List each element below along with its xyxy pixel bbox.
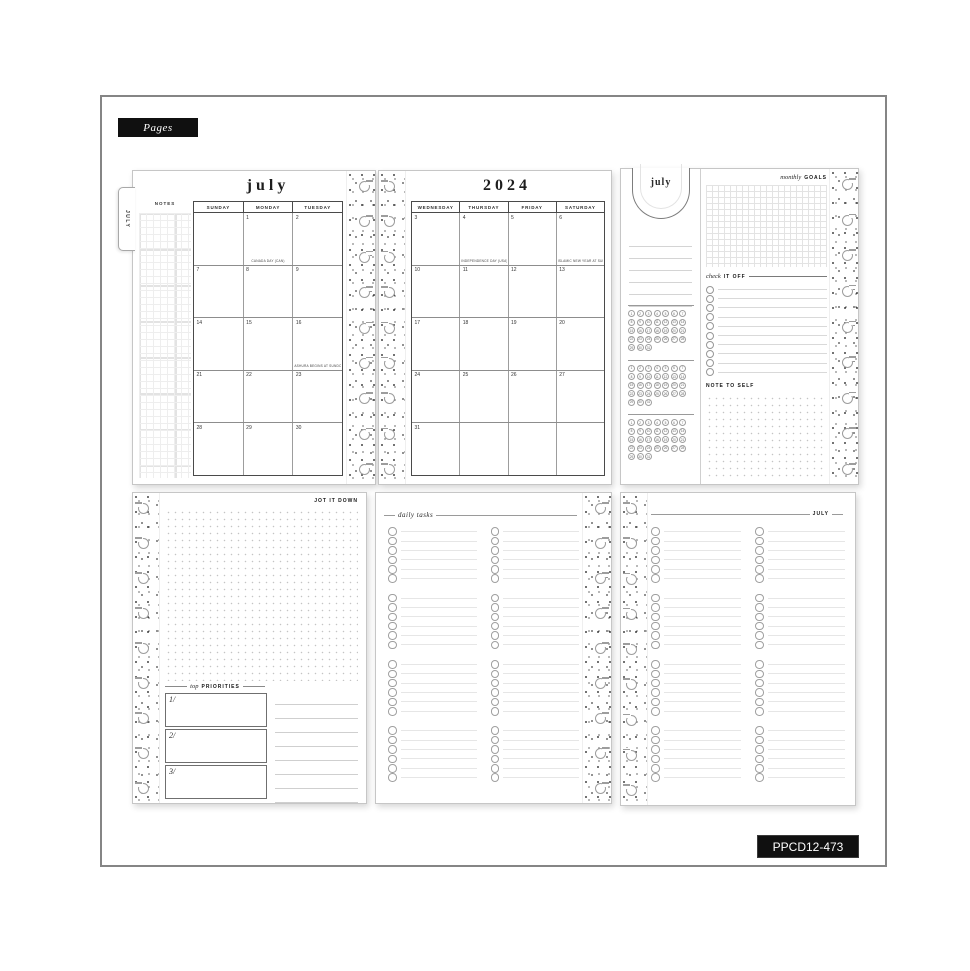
check-row	[755, 707, 845, 716]
write-in-line	[664, 559, 742, 560]
check-row	[388, 527, 477, 536]
checkbox-circle	[651, 556, 660, 565]
binder-disc	[842, 179, 853, 190]
tracker-day: 21	[679, 327, 686, 334]
check-row	[651, 707, 741, 716]
tracker-day: 5	[662, 365, 669, 372]
page-monthly-left: JULY july NOTES SUNDAYMONDAYTUESDAY1CANA…	[132, 170, 376, 485]
binder-disc	[626, 715, 637, 726]
checkbox-circle	[755, 565, 764, 574]
checkbox-circle	[651, 679, 660, 688]
write-in-line	[401, 541, 477, 542]
checkbox-circle	[491, 755, 500, 764]
checkbox-circle	[755, 594, 764, 603]
priority-number: 3/	[169, 767, 175, 776]
checkbox-circle	[388, 726, 397, 735]
tracker-day: 11	[654, 319, 661, 326]
tracker-day: 25	[654, 336, 661, 343]
tracker-day: 27	[671, 445, 678, 452]
checkbox-circle	[388, 546, 397, 555]
checkbox-circle	[755, 574, 764, 583]
write-in-line	[664, 550, 742, 551]
tracker-day: 14	[679, 319, 686, 326]
calendar-week-row: 34INDEPENDENCE DAY (USA)56ISLAMIC NEW YE…	[412, 213, 604, 266]
binder-disc	[359, 287, 370, 298]
binder-disc	[595, 538, 606, 549]
checkbox-circle	[491, 707, 500, 716]
note-to-self-dot-grid	[706, 395, 827, 478]
check-row	[706, 322, 827, 331]
calendar-grid-left: SUNDAYMONDAYTUESDAY1CANADA DAY (CAN)2789…	[193, 201, 343, 476]
binder-disc	[384, 287, 395, 298]
task-column	[388, 527, 477, 795]
calendar-cell: 12	[509, 266, 557, 318]
checkbox-circle	[706, 313, 714, 321]
checkbox-circle	[651, 764, 660, 773]
write-in-line	[664, 711, 742, 712]
task-group	[388, 660, 477, 716]
write-in-line	[768, 768, 846, 769]
check-row	[651, 546, 741, 555]
check-row	[491, 745, 580, 754]
calendar-cell: 20	[557, 318, 604, 370]
write-in-line	[664, 730, 742, 731]
check-row	[651, 640, 741, 649]
tracker-day: 26	[662, 445, 669, 452]
tracker-day: 18	[654, 327, 661, 334]
checkbox-circle	[651, 631, 660, 640]
write-in-line	[401, 616, 477, 617]
check-row	[388, 669, 477, 678]
binder-disc	[842, 286, 853, 297]
write-in-line	[664, 541, 742, 542]
check-row	[491, 536, 580, 545]
checkbox-circle	[755, 726, 764, 735]
binder-disc	[626, 503, 637, 514]
task-group	[491, 660, 580, 716]
tracker-day: 30	[637, 344, 644, 351]
checkbox-circle	[651, 641, 660, 650]
july-header: JULY	[651, 511, 843, 517]
note-to-self-header: NOTE TO SELF	[706, 383, 754, 389]
monthly-goals-header: monthly GOALS	[780, 174, 827, 181]
checkbox-circle	[706, 368, 714, 376]
checkbox-circle	[491, 660, 500, 669]
checkbox-circle	[388, 679, 397, 688]
checkbox-circle	[651, 707, 660, 716]
check-row	[388, 707, 477, 716]
write-in-line	[401, 607, 477, 608]
write-in-line	[401, 531, 477, 532]
write-in-line	[401, 758, 477, 759]
check-row	[491, 603, 580, 612]
tracker-day: 10	[645, 428, 652, 435]
check-row	[651, 527, 741, 536]
write-in-line	[768, 626, 846, 627]
tracker-day: 20	[671, 436, 678, 443]
tracker-day: 5	[662, 310, 669, 317]
write-in-line	[503, 616, 579, 617]
day-number: 16	[296, 320, 302, 326]
calendar-cell: 21	[194, 371, 244, 423]
checkbox-circle	[651, 660, 660, 669]
checkbox-circle	[651, 574, 660, 583]
header-rule	[243, 686, 265, 687]
ruled-line	[275, 733, 358, 747]
binder-disc	[595, 783, 606, 794]
checkbox-circle	[755, 736, 764, 745]
check-row	[491, 565, 580, 574]
priorities-script-word: top	[190, 683, 198, 690]
checkbox-circle	[651, 670, 660, 679]
write-in-line	[768, 607, 846, 608]
write-in-line	[718, 317, 827, 318]
tracker-day: 23	[637, 445, 644, 452]
write-in-line	[664, 683, 742, 684]
write-in-line	[503, 644, 579, 645]
check-row	[491, 574, 580, 583]
tracker-day: 16	[637, 382, 644, 389]
day-header: WEDNESDAY	[412, 202, 460, 212]
check-row	[755, 726, 845, 735]
binder-disc	[138, 503, 149, 514]
jot-dot-grid	[165, 509, 358, 681]
checkbox-circle	[706, 350, 714, 358]
check-row	[491, 527, 580, 536]
check-row	[706, 303, 827, 312]
check-script-word: check	[706, 273, 721, 280]
task-group	[755, 527, 845, 583]
day-number: 12	[511, 267, 517, 273]
tracker-day: 10	[645, 319, 652, 326]
check-row	[755, 640, 845, 649]
write-in-line	[718, 335, 827, 336]
tracker-day: 17	[645, 436, 652, 443]
check-row	[755, 555, 845, 564]
check-row	[491, 593, 580, 602]
day-number: 25	[463, 372, 469, 378]
write-in-line	[401, 550, 477, 551]
write-in-line	[503, 626, 579, 627]
page-daily-tasks: daily tasks	[375, 492, 612, 804]
checkbox-circle	[388, 660, 397, 669]
day-number: 17	[415, 320, 421, 326]
checkbox-circle	[651, 698, 660, 707]
calendar-cell: 17	[412, 318, 460, 370]
checkbox-circle	[491, 688, 500, 697]
calendar-cell: 4INDEPENDENCE DAY (USA)	[460, 213, 508, 265]
check-row	[388, 593, 477, 602]
check-row	[755, 612, 845, 621]
check-row	[755, 631, 845, 640]
day-number: 31	[415, 425, 421, 431]
tracker-day: 12	[662, 373, 669, 380]
day-number: 3	[415, 215, 418, 221]
binder-disc	[384, 393, 395, 404]
write-in-line	[503, 531, 579, 532]
checkbox-circle	[388, 688, 397, 697]
checkbox-circle	[388, 773, 397, 782]
checkbox-circle	[651, 773, 660, 782]
check-row	[651, 536, 741, 545]
tracker-day: 27	[671, 390, 678, 397]
tracker-day: 17	[645, 382, 652, 389]
write-in-line	[401, 711, 477, 712]
calendar-cell: 14	[194, 318, 244, 370]
calendar-cell: 10	[412, 266, 460, 318]
write-in-line	[664, 664, 742, 665]
calendar-week-row: 1CANADA DAY (CAN)2	[194, 213, 342, 266]
calendar-cell	[509, 423, 557, 475]
binder-disc	[359, 429, 370, 440]
check-row	[706, 340, 827, 349]
calendar-cell: 26	[509, 371, 557, 423]
check-row	[755, 622, 845, 631]
tracker-day: 4	[654, 365, 661, 372]
ruled-line	[629, 235, 692, 247]
checkbox-circle	[388, 556, 397, 565]
calendar-cell: 16ASHURA BEGINS AT SUNDOWN (MUS)	[293, 318, 342, 370]
write-in-line	[664, 616, 742, 617]
binder-disc	[384, 181, 395, 192]
write-in-line	[664, 644, 742, 645]
calendar-cell	[194, 213, 244, 265]
tracker-day: 11	[654, 373, 661, 380]
header-rule	[832, 514, 843, 515]
checkbox-circle	[491, 641, 500, 650]
calendar-week-row: 141516ASHURA BEGINS AT SUNDOWN (MUS)	[194, 318, 342, 371]
july-half-circle-tab: july	[632, 168, 690, 219]
write-in-line	[768, 598, 846, 599]
write-in-line	[401, 626, 477, 627]
write-in-line	[768, 692, 846, 693]
tracker-day: 23	[637, 390, 644, 397]
binder-disc	[842, 464, 853, 475]
checkbox-circle	[388, 574, 397, 583]
tracker-day: 4	[654, 310, 661, 317]
ruled-line	[275, 705, 358, 719]
tracker-day: 20	[671, 382, 678, 389]
holiday-note: ISLAMIC NEW YEAR AT SUNDOWN (MUS)	[558, 259, 603, 263]
calendar-week-row: 789	[194, 266, 342, 319]
tracker-day: 19	[662, 436, 669, 443]
checkbox-circle	[651, 603, 660, 612]
checkbox-circle	[755, 622, 764, 631]
tracker-day: 27	[671, 336, 678, 343]
check-row	[651, 745, 741, 754]
check-row	[388, 631, 477, 640]
day-number: 2	[296, 215, 299, 221]
checkbox-circle	[491, 527, 500, 536]
write-in-line	[664, 569, 742, 570]
write-in-line	[664, 598, 742, 599]
calendar-cell	[557, 423, 604, 475]
check-row	[651, 764, 741, 773]
checkbox-circle	[706, 295, 714, 303]
task-column	[491, 527, 580, 795]
checkbox-circle	[491, 613, 500, 622]
checkbox-circle	[755, 546, 764, 555]
write-in-line	[718, 344, 827, 345]
tracker-day: 2	[637, 310, 644, 317]
tracker-day: 29	[628, 399, 635, 406]
day-number: 30	[296, 425, 302, 431]
tracker-day: 31	[645, 453, 652, 460]
write-in-line	[768, 664, 846, 665]
checkbox-circle	[491, 574, 500, 583]
checkbox-circle	[491, 773, 500, 782]
jot-it-down-header: JOT IT DOWN	[314, 498, 358, 504]
check-row	[388, 754, 477, 763]
check-row	[651, 697, 741, 706]
calendar-day-headers: SUNDAYMONDAYTUESDAY	[194, 202, 342, 213]
tracker-day: 10	[645, 373, 652, 380]
check-row	[755, 574, 845, 583]
task-group	[491, 726, 580, 782]
task-group	[651, 593, 741, 649]
check-row	[755, 697, 845, 706]
check-row	[388, 565, 477, 574]
check-row	[491, 555, 580, 564]
checkbox-circle	[651, 736, 660, 745]
checkbox-circle	[388, 641, 397, 650]
check-row	[651, 726, 741, 735]
write-in-line	[503, 730, 579, 731]
check-row	[388, 726, 477, 735]
tracker-day: 16	[637, 327, 644, 334]
write-in-line	[768, 683, 846, 684]
calendar-week-row: 31	[412, 423, 604, 475]
checkbox-circle	[388, 670, 397, 679]
write-in-line	[664, 768, 742, 769]
calendar-day-headers: WEDNESDAYTHURSDAYFRIDAYSATURDAY	[412, 202, 604, 213]
checkbox-circle	[755, 660, 764, 669]
calendar-cell: 28	[194, 423, 244, 475]
write-in-line	[401, 635, 477, 636]
ruled-line	[275, 761, 358, 775]
checkbox-circle	[388, 631, 397, 640]
check-row	[755, 593, 845, 602]
page-jot-it-down: JOT IT DOWN top PRIORITIES 1/ 2/ 3/	[132, 492, 367, 804]
checkbox-circle	[388, 755, 397, 764]
tracker-day: 21	[679, 382, 686, 389]
day-header: SUNDAY	[194, 202, 244, 212]
binder-disc	[359, 252, 370, 263]
write-in-line	[768, 616, 846, 617]
checkbox-circle	[388, 565, 397, 574]
write-in-line	[503, 768, 579, 769]
check-row	[491, 764, 580, 773]
ruled-line	[275, 789, 358, 803]
dashboard-left-column: july 12345678910111213141516171819202122…	[621, 169, 701, 484]
tracker-days: 1234567891011121314151617181920212223242…	[628, 310, 694, 353]
check-row	[388, 697, 477, 706]
write-in-line	[664, 607, 742, 608]
binder-disc	[595, 608, 606, 619]
checkbox-circle	[388, 707, 397, 716]
tracker-day: 26	[662, 390, 669, 397]
checkbox-circle	[491, 631, 500, 640]
binding-edge	[621, 493, 648, 805]
write-in-line	[718, 289, 827, 290]
day-header: THURSDAY	[460, 202, 508, 212]
holiday-note: INDEPENDENCE DAY (USA)	[461, 259, 506, 263]
tracker-block: 1234567891011121314151617181920212223242…	[628, 414, 694, 462]
check-row	[388, 574, 477, 583]
write-in-line	[664, 758, 742, 759]
tracker-day: 1	[628, 310, 635, 317]
priority-box-1: 1/	[165, 693, 267, 727]
binder-disc	[138, 573, 149, 584]
tracker-day: 15	[628, 382, 635, 389]
write-in-line	[664, 531, 742, 532]
check-row	[388, 745, 477, 754]
write-in-line	[503, 673, 579, 674]
check-row	[388, 764, 477, 773]
tracker-day: 22	[628, 336, 635, 343]
tracker-day: 18	[654, 382, 661, 389]
binder-disc	[595, 678, 606, 689]
write-in-line	[401, 740, 477, 741]
calendar-cell: 15	[244, 318, 294, 370]
daily-tasks-title: daily tasks	[398, 511, 433, 519]
image-frame: Pages PPCD12-473 JULY july NOTES SUNDAYM…	[100, 95, 887, 867]
tracker-day: 31	[645, 344, 652, 351]
calendar-cell: 31	[412, 423, 460, 475]
write-in-line	[718, 363, 827, 364]
tracker-day: 3	[645, 310, 652, 317]
calendar-week-row: 212223	[194, 371, 342, 424]
checkbox-circle	[651, 688, 660, 697]
binder-disc	[595, 643, 606, 654]
checkbox-circle	[706, 341, 714, 349]
calendar-cell: 18	[460, 318, 508, 370]
write-in-line	[664, 777, 742, 778]
binder-disc	[626, 644, 637, 655]
day-number: 11	[463, 267, 468, 273]
tracker-day: 3	[645, 365, 652, 372]
tracker-day: 11	[654, 428, 661, 435]
tracker-day: 28	[679, 445, 686, 452]
ruled-line	[629, 283, 692, 295]
checkbox-circle	[491, 679, 500, 688]
checkbox-circle	[491, 603, 500, 612]
task-group	[491, 593, 580, 649]
tracker-day: 22	[628, 390, 635, 397]
check-row	[388, 555, 477, 564]
check-row	[491, 697, 580, 706]
day-header: TUESDAY	[293, 202, 342, 212]
check-row	[388, 546, 477, 555]
check-row	[651, 688, 741, 697]
write-in-line	[503, 749, 579, 750]
checkbox-circle	[491, 556, 500, 565]
pages-label: Pages	[118, 118, 198, 137]
binder-disc	[138, 713, 149, 724]
write-in-line	[768, 578, 846, 579]
write-in-line	[401, 559, 477, 560]
calendar-cell: 24	[412, 371, 460, 423]
tracker-day: 8	[628, 319, 635, 326]
write-in-line	[401, 730, 477, 731]
tracker-day: 6	[671, 365, 678, 372]
write-in-line	[718, 372, 827, 373]
checkbox-circle	[491, 594, 500, 603]
checkbox-circle	[755, 641, 764, 650]
day-number: 10	[415, 267, 421, 273]
binder-disc	[384, 464, 395, 475]
priority-number: 2/	[169, 731, 175, 740]
